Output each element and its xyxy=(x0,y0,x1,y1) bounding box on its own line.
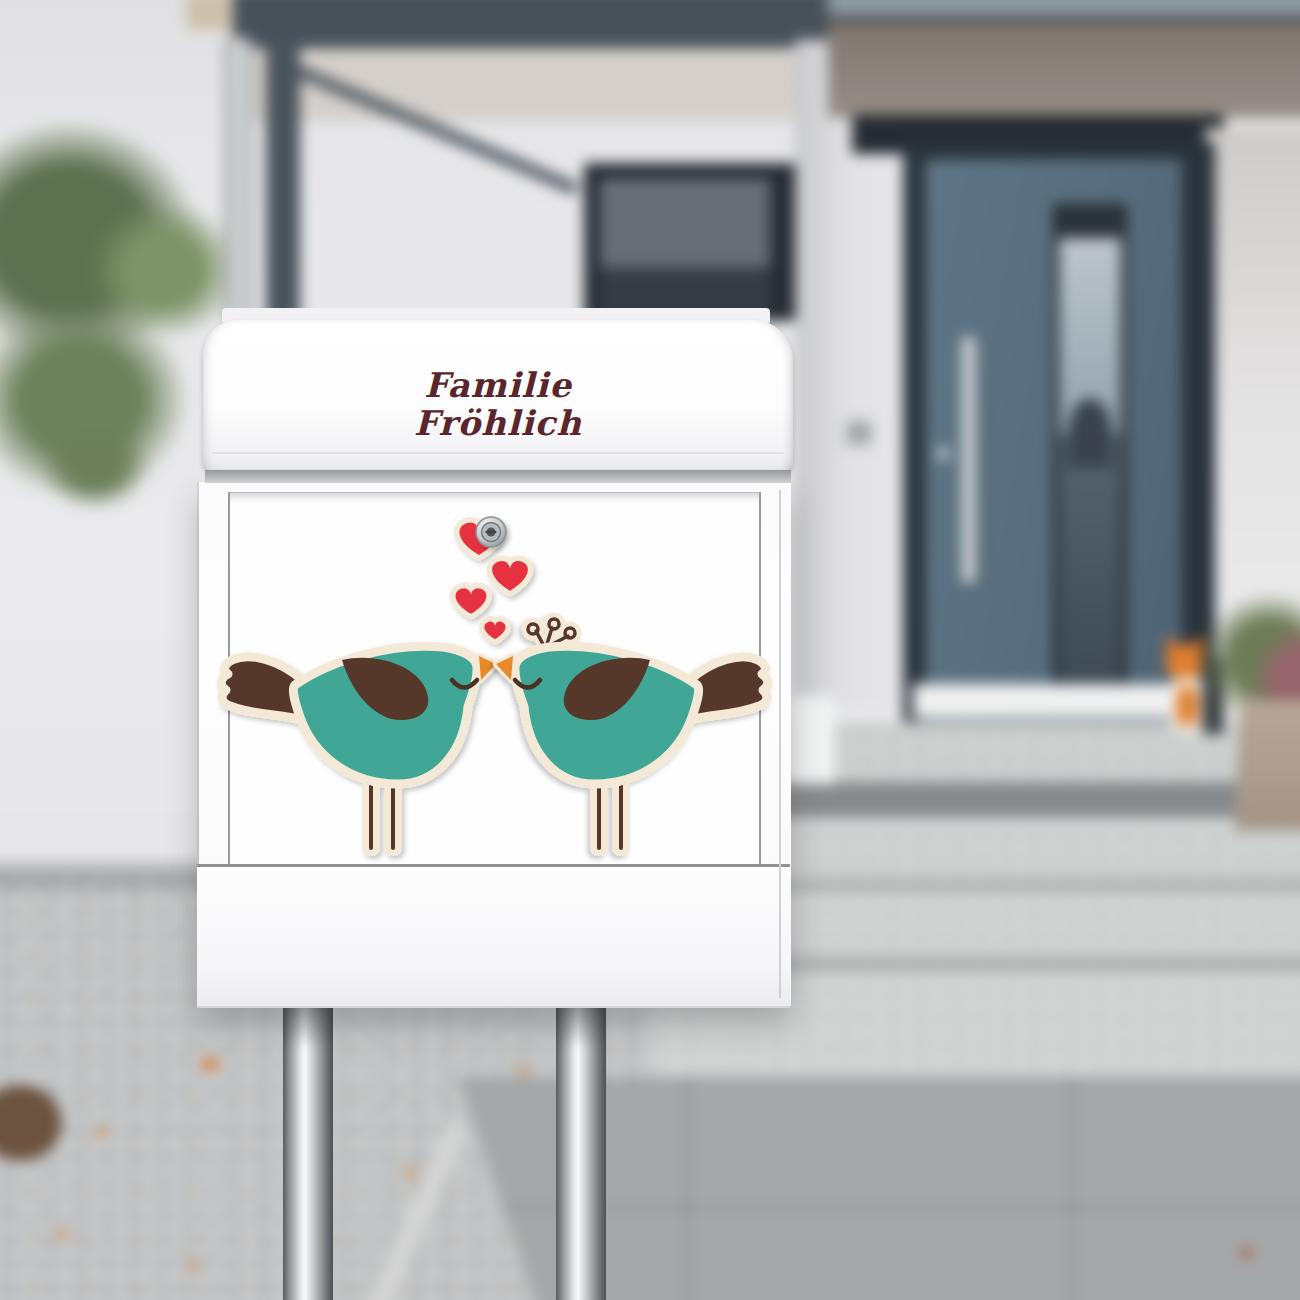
plant-foliage xyxy=(40,420,150,510)
newspaper-compartment xyxy=(197,867,790,1008)
door-glass-top xyxy=(1059,210,1121,238)
nameplate: Familie Fröhlich xyxy=(203,366,793,442)
porch-pillar xyxy=(785,696,835,784)
glass-reflection-silhouette xyxy=(1068,398,1112,468)
door-handle xyxy=(961,336,977,584)
fallen-leaf xyxy=(1240,1248,1253,1258)
fallen-leaf xyxy=(202,1058,218,1071)
plant-foliage xyxy=(90,200,240,340)
canopy-post xyxy=(266,38,300,322)
fox-figurine-markings xyxy=(1176,686,1198,726)
photo-stage: Familie Fröhlich xyxy=(0,0,1300,1300)
fallen-leaf xyxy=(96,1128,107,1137)
window-blinds xyxy=(600,178,770,268)
mailbox-lid-lip xyxy=(212,452,784,454)
fallen-leaf xyxy=(404,1168,415,1177)
lock-icon xyxy=(476,517,506,547)
fallen-leaf xyxy=(56,1230,68,1240)
flower-pot xyxy=(1235,700,1300,830)
doorbell-button xyxy=(850,424,868,442)
canopy-fascia xyxy=(828,22,1300,118)
fallen-leaf xyxy=(518,1066,528,1075)
mailbox-post-left xyxy=(283,1002,333,1300)
love-birds-decal xyxy=(200,480,790,880)
door-keyhole xyxy=(937,447,950,460)
canopy-beam xyxy=(233,0,873,55)
mailbox-post-right xyxy=(556,1002,606,1300)
bird-right xyxy=(496,618,768,856)
nameplate-line1: Familie xyxy=(203,366,793,404)
fallen-leaf xyxy=(188,1260,198,1269)
nameplate-line2: Fröhlich xyxy=(203,404,793,442)
downpipe xyxy=(225,38,252,322)
bird-left xyxy=(221,646,496,856)
door-glass-lower xyxy=(1059,434,1121,702)
